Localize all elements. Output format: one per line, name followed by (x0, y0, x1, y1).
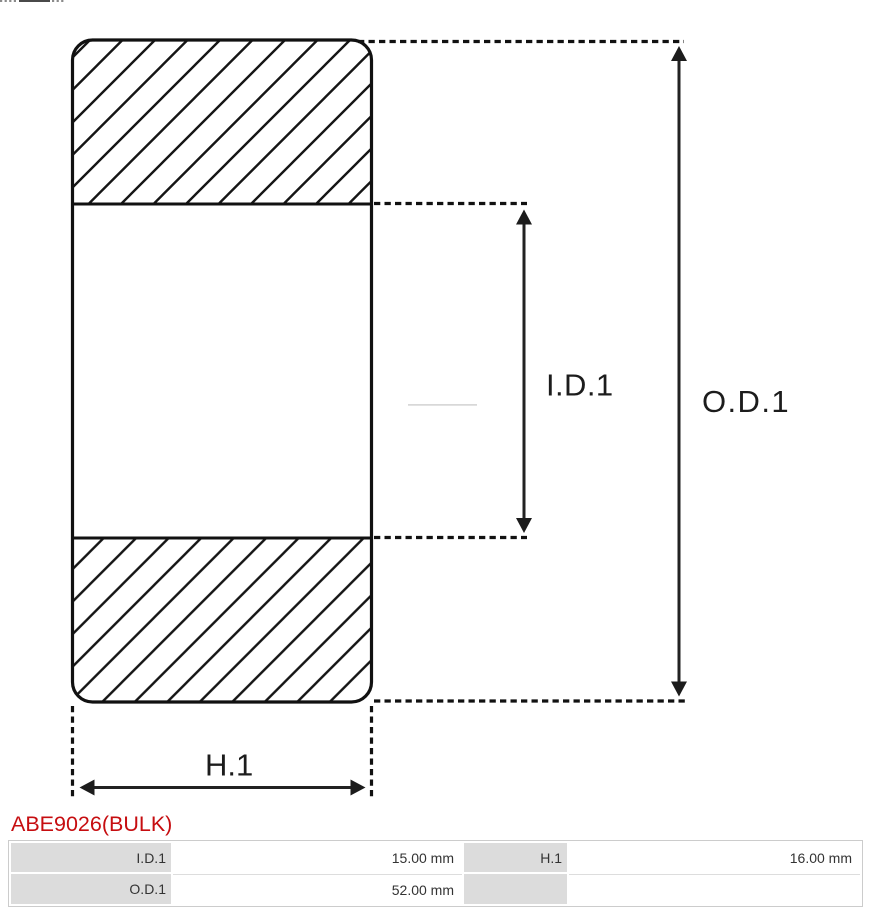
svg-text:I.D.1: I.D.1 (546, 368, 613, 403)
svg-text:H.1: H.1 (205, 748, 253, 783)
svg-text:O.D.1: O.D.1 (702, 384, 790, 419)
